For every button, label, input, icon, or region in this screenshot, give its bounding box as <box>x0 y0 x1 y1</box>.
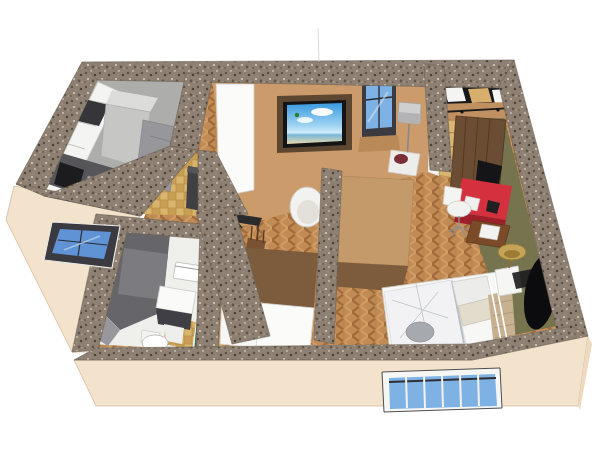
towel-rack <box>173 262 202 282</box>
rail-roller-2 <box>496 108 499 111</box>
gathered-blanket <box>406 322 434 342</box>
floor-lamp-shade-lower <box>398 112 421 124</box>
closet-box-tan <box>468 88 492 103</box>
maroon-pillow <box>394 154 408 164</box>
tv-cloud <box>311 108 333 116</box>
side-table-white-box <box>479 224 500 240</box>
white-tub-chair-seat <box>297 200 319 224</box>
wardrobe-top <box>334 176 414 266</box>
living-window-sill <box>358 135 400 152</box>
brass-lamp-shade-inner <box>504 250 520 258</box>
floorplan-render-canvas <box>0 0 600 450</box>
floorplan-svg <box>0 0 600 450</box>
office-chair-seat <box>447 201 471 217</box>
wardrobe-block <box>330 176 414 292</box>
rail-roller-1 <box>460 110 463 113</box>
tv-cloud-2 <box>297 117 313 123</box>
tv-palm <box>295 113 299 117</box>
